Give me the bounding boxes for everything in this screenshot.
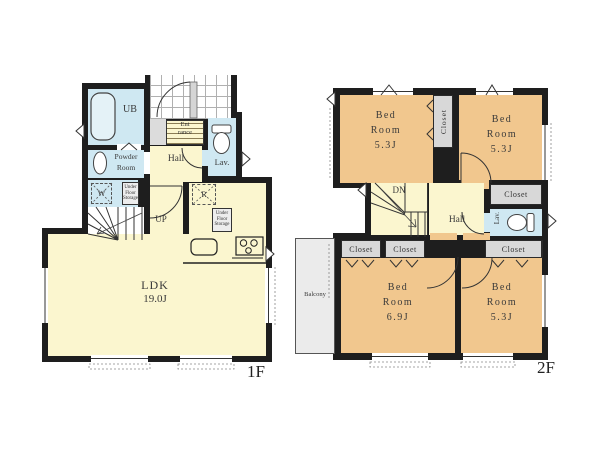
powder-line1: Powder bbox=[104, 152, 148, 163]
door-gap bbox=[484, 213, 490, 232]
balcony-label: Balcony bbox=[295, 291, 335, 299]
window bbox=[91, 355, 148, 362]
closet-box-vertical: Closet bbox=[433, 95, 453, 148]
under-floor-storage-box: Under Floor Storage bbox=[122, 182, 139, 205]
dn-text: DN bbox=[393, 185, 406, 195]
bedroom-4-size: 5.3J bbox=[463, 310, 541, 325]
bedroom-4-line2: Room bbox=[463, 295, 541, 310]
unit-bath-label: UB bbox=[116, 104, 144, 117]
lavatory-1f-text: Lav. bbox=[215, 157, 230, 167]
unit-bath-text: UB bbox=[123, 104, 137, 115]
closet-box: Closet bbox=[490, 184, 542, 205]
entrance-porch-tiles bbox=[150, 75, 231, 119]
bedroom-3-size: 6.9J bbox=[352, 310, 444, 325]
floor-2f-text: 2F bbox=[537, 358, 555, 377]
floorplan-canvas: Ent rance W Under Floor Storage R Un bbox=[0, 0, 600, 449]
bedroom-2-line1: Bed bbox=[463, 112, 541, 127]
balcony-text: Balcony bbox=[304, 291, 326, 298]
lavatory-2f-text: Lav. bbox=[493, 212, 502, 224]
window bbox=[542, 275, 548, 327]
entrance-label-line2: rance bbox=[167, 129, 203, 137]
floor-1f-text: 1F bbox=[247, 362, 265, 381]
floor-label-1f: 1F bbox=[238, 362, 274, 382]
powder-line2: Room bbox=[104, 163, 148, 174]
bedroom-3-label: Bed Room 6.9J bbox=[352, 280, 444, 325]
window bbox=[373, 88, 413, 95]
closet-text: Closet bbox=[504, 190, 527, 199]
entrance-shoe-cabinet: Ent rance bbox=[166, 120, 204, 145]
ufs-line: Storage bbox=[213, 222, 231, 228]
room-unit-bath bbox=[88, 89, 144, 145]
closet-box: Closet bbox=[341, 240, 381, 258]
window bbox=[42, 268, 48, 323]
window bbox=[463, 353, 513, 360]
bedroom-3-line1: Bed bbox=[352, 280, 444, 295]
up-text: UP bbox=[155, 214, 167, 224]
closet-box: Closet bbox=[485, 240, 542, 258]
porch-wall bbox=[231, 75, 237, 119]
window bbox=[476, 88, 513, 95]
bedroom-4-label: Bed Room 5.3J bbox=[463, 280, 541, 325]
bedroom-2-label: Bed Room 5.3J bbox=[463, 112, 541, 157]
floor-label-2f: 2F bbox=[528, 358, 564, 378]
lavatory-2f-label: Lav. bbox=[491, 210, 503, 236]
lavatory-1f-label: Lav. bbox=[206, 157, 238, 168]
closet-box: Closet bbox=[385, 240, 425, 258]
refrigerator-label: R bbox=[201, 190, 206, 199]
ldk-size: 19.0J bbox=[100, 293, 210, 307]
refrigerator-box: R bbox=[192, 184, 216, 205]
ufs-line: Under bbox=[123, 185, 138, 191]
dn-label: DN bbox=[386, 185, 412, 196]
bedroom-1-line2: Room bbox=[346, 123, 426, 138]
up-label: UP bbox=[148, 214, 174, 225]
bedroom-2-size: 5.3J bbox=[463, 142, 541, 157]
hall-corridor bbox=[150, 182, 183, 234]
ldk-name: LDK bbox=[100, 278, 210, 293]
hall-1f-text: Hall bbox=[168, 154, 184, 164]
entrance-step bbox=[150, 119, 166, 145]
window bbox=[180, 355, 232, 362]
hall-2f-text: Hall bbox=[449, 215, 465, 225]
bedroom-1-line1: Bed bbox=[346, 108, 426, 123]
bedroom-1-label: Bed Room 5.3J bbox=[346, 108, 426, 153]
bedroom-4-line1: Bed bbox=[463, 280, 541, 295]
under-floor-storage-box: Under Floor Storage bbox=[212, 208, 232, 232]
room-hall-2f bbox=[429, 183, 484, 235]
closet-text: Closet bbox=[502, 245, 525, 254]
window bbox=[372, 353, 428, 360]
window bbox=[542, 125, 548, 180]
bedroom-2-line2: Room bbox=[463, 127, 541, 142]
washer-box: W bbox=[91, 183, 112, 204]
door-gap bbox=[430, 233, 457, 240]
ldk-label: LDK 19.0J bbox=[100, 278, 210, 307]
washer-label: W bbox=[98, 189, 106, 198]
bedroom-1-size: 5.3J bbox=[346, 138, 426, 153]
entrance-label-line1: Ent bbox=[167, 121, 203, 129]
powder-room-label: Powder Room bbox=[104, 152, 148, 174]
closet-text: Closet bbox=[393, 245, 416, 254]
ufs-line: Storage bbox=[123, 196, 138, 202]
bedroom-3-line2: Room bbox=[352, 295, 444, 310]
hall-1f-label: Hall bbox=[154, 154, 198, 166]
window bbox=[265, 268, 272, 323]
door-gap bbox=[463, 233, 490, 240]
closet-text: Closet bbox=[349, 245, 372, 254]
closet-text: Closet bbox=[439, 109, 448, 134]
hall-2f-label: Hall bbox=[440, 215, 474, 227]
